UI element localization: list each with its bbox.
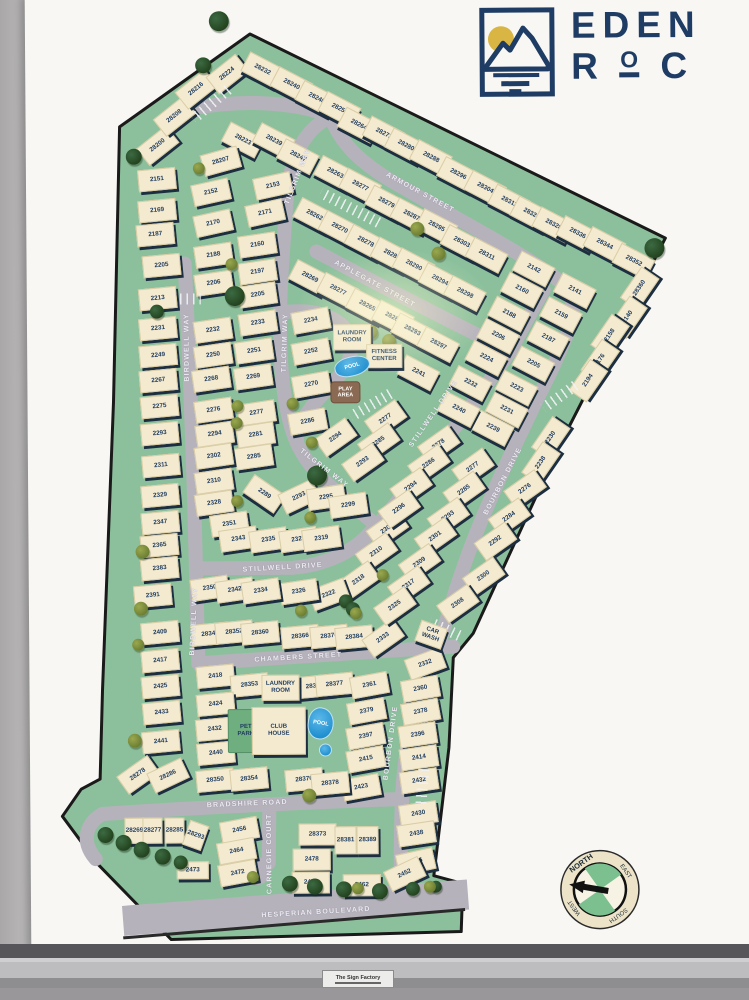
building: 2251: [234, 337, 275, 364]
building: 2171: [244, 198, 286, 228]
parking-stripes: [175, 293, 201, 304]
tree-icon: [336, 881, 352, 897]
logo-roc: R O C: [571, 47, 687, 85]
building: 2417: [140, 648, 180, 673]
tree-icon: [150, 305, 164, 319]
tree-icon: [307, 878, 323, 894]
tree-icon: [193, 162, 205, 174]
building: 2270: [291, 370, 332, 398]
building: 2275: [140, 394, 180, 419]
sign-maker-plaque: The Sign Factory: [322, 970, 394, 988]
street-label: STILLWELL DRIVE: [242, 562, 322, 574]
tree-icon: [136, 545, 150, 559]
street-label: BRADSHIRE ROAD: [207, 799, 288, 809]
building: 2293: [140, 421, 180, 446]
tree-icon: [306, 437, 318, 449]
building: 2187: [135, 222, 175, 247]
tree-icon: [286, 398, 298, 410]
tree-icon: [406, 882, 420, 896]
pool-area: POOL: [305, 706, 336, 742]
street-label: HESPERIAN BOULEVARD: [261, 906, 371, 919]
tree-icon: [226, 258, 238, 270]
building: 2234: [290, 306, 331, 334]
building: 2267: [138, 368, 178, 393]
tree-icon: [116, 835, 132, 851]
tree-icon: [410, 222, 424, 236]
building: 28285: [164, 817, 184, 843]
building: 28297: [416, 326, 460, 363]
tree-icon: [195, 57, 211, 73]
building: 28277: [142, 818, 162, 844]
tree-icon: [231, 417, 243, 429]
logo-r: R: [571, 48, 598, 85]
building: 2231: [138, 316, 178, 341]
amenity-building: CLUB HOUSE: [252, 707, 306, 755]
building: 2361: [349, 671, 390, 699]
plaque-line-icon: [335, 982, 381, 984]
building: 2478: [293, 848, 331, 870]
tree-icon: [644, 238, 664, 258]
tree-icon: [174, 855, 188, 869]
tree-icon: [304, 512, 316, 524]
building: 2441: [141, 729, 181, 754]
tree-icon: [372, 883, 388, 899]
tree-icon: [231, 495, 243, 507]
building: 2452: [383, 856, 427, 892]
sign-maker-name: The Sign Factory: [336, 975, 381, 981]
building: 2334: [240, 577, 281, 604]
building: 28298: [443, 275, 487, 312]
street-label: BIRDWELL WAY: [183, 313, 190, 382]
building: 2269: [233, 363, 274, 390]
street-label: CHAMBERS STREET: [254, 652, 342, 664]
amenity-building: FITNESS CENTER: [366, 344, 402, 368]
tree-icon: [295, 605, 307, 617]
tree-icon: [225, 286, 245, 306]
building: 2438: [396, 820, 437, 847]
tree-icon: [377, 569, 389, 581]
building: 2241: [396, 354, 440, 391]
building: 28293: [182, 820, 210, 851]
tree-icon: [134, 602, 148, 616]
building: 2302: [193, 443, 234, 470]
building: 2233: [238, 309, 279, 336]
building: 2425: [141, 674, 181, 699]
compass-rose: NORTH EAST SOUTH WEST: [530, 841, 671, 947]
tree-icon: [431, 247, 445, 261]
logo-eden: EDEN: [571, 6, 702, 44]
logo-c: C: [660, 47, 687, 84]
building: 28311: [465, 237, 509, 274]
tree-icon: [282, 876, 298, 892]
tree-icon: [350, 607, 362, 619]
building: 2409: [140, 620, 180, 645]
tree-icon: [231, 400, 243, 412]
building: 2268: [191, 366, 232, 393]
mountain-sun-icon: [477, 7, 558, 100]
building: 2249: [138, 343, 178, 368]
building: 28354: [229, 766, 269, 791]
tree-icon: [126, 149, 142, 165]
building: 2311: [141, 453, 181, 478]
amenity-building: LAUNDRY ROOM: [261, 675, 299, 701]
building: 2152: [190, 177, 232, 207]
building: 2383: [140, 556, 180, 581]
sign-frame-bottom: The Sign Factory: [0, 944, 749, 1000]
building: 2347: [140, 510, 180, 535]
building: 2232: [193, 317, 234, 344]
building: 2299: [328, 492, 369, 519]
logo-wordmark: EDEN R O C: [571, 6, 702, 99]
tree-icon: [424, 881, 436, 893]
building: 2252: [290, 337, 331, 365]
tree-icon: [302, 789, 316, 803]
building: 2151: [137, 167, 177, 192]
building: 28360: [240, 620, 280, 645]
building: 28381: [334, 826, 356, 854]
building: 2276: [193, 397, 234, 424]
map-layers: 2820028208282162822428232282402824828256…: [0, 0, 749, 963]
tree-icon: [128, 734, 142, 748]
building: 28377: [315, 672, 355, 697]
building: 2319: [301, 525, 342, 552]
building: 2160: [237, 231, 278, 258]
tree-icon: [209, 11, 229, 31]
building: 28207: [200, 146, 242, 177]
tree-icon: [155, 849, 171, 865]
play-area: PLAY AREA: [330, 381, 360, 403]
building: 2169: [137, 198, 177, 223]
building: 2433: [142, 700, 182, 725]
photo-of-sign: 2820028208282162822428232282402824828256…: [0, 0, 749, 1000]
community-map-sign: 2820028208282162822428232282402824828256…: [25, 0, 749, 953]
building: 28373: [298, 823, 336, 845]
building: 2286: [287, 407, 328, 435]
tree-icon: [134, 842, 150, 858]
building: 2329: [140, 483, 180, 508]
tree-icon: [132, 639, 144, 651]
tree-icon: [97, 827, 113, 843]
spa-area: [318, 743, 331, 756]
logo-o: O: [619, 48, 639, 77]
building: 28389: [356, 826, 378, 854]
tree-icon: [352, 882, 364, 894]
eden-roc-logo: EDEN R O C: [477, 6, 726, 100]
street-label: CARNEGIE COURT: [266, 814, 274, 895]
building: 2170: [192, 208, 234, 238]
building: 2205: [142, 253, 182, 278]
tree-icon: [247, 871, 259, 883]
street-label: TILGRIM WAY: [281, 313, 290, 372]
building: 28378: [310, 771, 350, 796]
building: 2285: [233, 443, 274, 470]
